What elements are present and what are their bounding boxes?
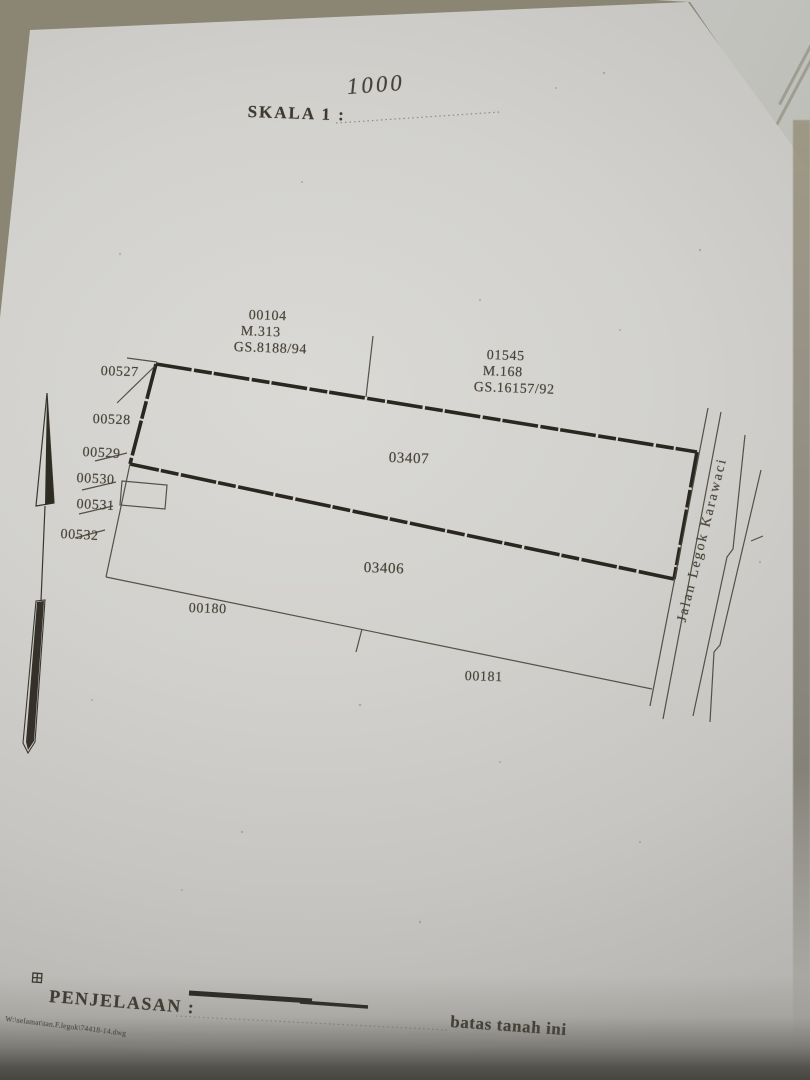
boundary-point-00530: 00530 [76, 471, 115, 489]
boundary-point-00529: 00529 [82, 445, 121, 463]
photo-edge-strip [793, 120, 810, 1050]
boundary-point-00532: 00532 [60, 527, 99, 545]
boundary-point-00527: 00527 [100, 364, 139, 381]
boundary-point-00531: 00531 [76, 497, 115, 515]
scale-label: SKALA 1 : [247, 102, 346, 125]
ref-mark-a-id: 00104 [248, 308, 287, 325]
ref-mark-b-id: 01545 [486, 348, 525, 365]
boundary-tick [356, 629, 362, 652]
paper-speckles [91, 36, 779, 923]
parcel-label-03406: 03406 [363, 560, 404, 578]
parcel-edge-top [156, 364, 697, 452]
ref-mark-a-m: M.313 [240, 324, 280, 341]
corner-overshoot-line [127, 358, 157, 362]
photo-shadow-bottom [0, 975, 810, 1080]
photo-background: 1000 SKALA 1 : 00104 M.313 GS.8188/94 01… [0, 0, 810, 1080]
ref-mark-b-gs: GS.16157/92 [473, 380, 554, 399]
paper-sheet: 1000 SKALA 1 : 00104 M.313 GS.8188/94 01… [0, 0, 810, 1080]
parcel-divider-tick [366, 336, 373, 397]
boundary-point-00528: 00528 [92, 412, 131, 429]
lower-boundary-line [106, 577, 652, 689]
survey-drawing [0, 0, 810, 1080]
scale-value: 1000 [346, 70, 406, 100]
parcel-label-03407: 03407 [388, 450, 429, 468]
north-arrow-icon [23, 393, 54, 753]
parcel-outline [130, 364, 697, 579]
road-lines [650, 408, 763, 722]
road-tick [751, 536, 763, 541]
boundary-point-00181: 00181 [464, 669, 503, 686]
ref-mark-b-m: M.168 [482, 364, 522, 381]
building-rectangle [120, 481, 167, 509]
boundary-point-00180: 00180 [188, 601, 227, 618]
scale-dotted-line [336, 112, 500, 123]
ref-mark-a-gs: GS.8188/94 [233, 340, 307, 359]
